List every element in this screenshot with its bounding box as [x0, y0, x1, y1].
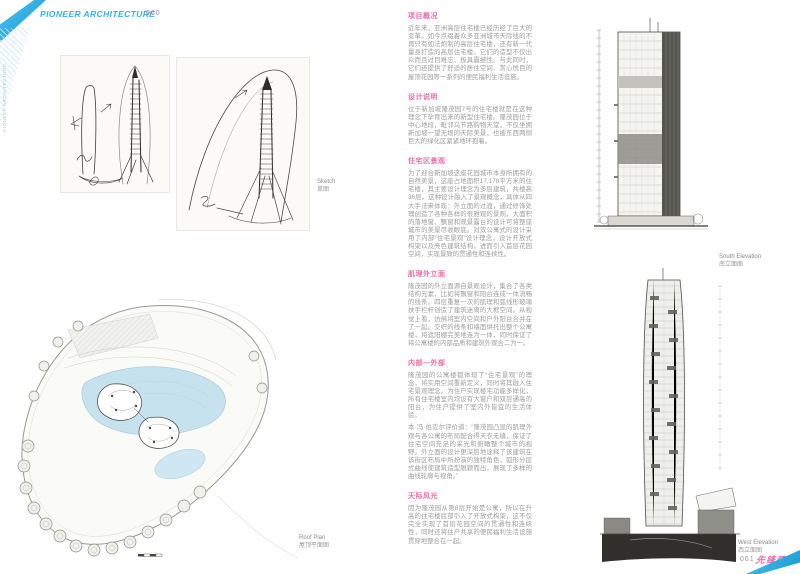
- article-column: 项目概况 近年来，亚洲高层住宅楼已经历经了巨大的变革。如今点缀着众多亚洲城市天际…: [408, 11, 532, 550]
- west-elevation-caption-en: West Elevation: [738, 540, 778, 548]
- section-heading: 内部—外部: [408, 358, 532, 368]
- page-number-right: 061: [740, 556, 755, 563]
- section-paragraph: 为了迎合新加坡这座花园城市本身所拥有的自然美景，这座占地面积17,178平方米的…: [408, 170, 532, 259]
- magazine-spread: PIONEER ARCHITECTURE 060 PIONEER ARCHITE…: [0, 0, 800, 574]
- sketch-panel-1: [60, 55, 170, 193]
- section-heading: 天际风光: [408, 491, 532, 501]
- section-heading: 住宅区景观: [408, 156, 532, 166]
- section-paragraph: 近年来，亚洲高层住宅楼已经历经了巨大的变革。如今点缀着众多亚洲城市天际线的不再只…: [408, 25, 532, 82]
- roof-plan-drawing: [8, 296, 308, 568]
- roof-plan-caption-en: Roof Plan: [299, 535, 329, 543]
- sketch-caption-cn: 草图: [317, 187, 335, 195]
- section-paragraph: 本·冯·伯克尔评价道：“隆茂园凸显的肌理外观与各公寓的布局配合得天衣无缝，保证了…: [408, 424, 532, 481]
- page-number-left: 060: [146, 10, 161, 17]
- article-section: 设计说明 位于新加坡隆茂园7号的住宅楼就是在这种理念下孕育出来的新型住宅楼。隆茂…: [408, 92, 532, 146]
- article-section: 天际风光 因为隆茂园从第8层开始是公寓，所以在升高的住宅楼底部引入了开放式构架，…: [408, 491, 532, 545]
- article-section: 肌理外立面 隆茂园的外立面源自景观设计，集合了各类结构元素，比如将飘窗和阳台连成…: [408, 269, 532, 348]
- section-heading: 设计说明: [408, 92, 532, 102]
- south-elevation-caption-en: South Elevation: [719, 254, 761, 262]
- west-elevation-drawing: [600, 266, 740, 568]
- section-paragraph: 因为隆茂园从第8层开始是公寓，所以在升高的住宅楼底部引入了开放式构架，这不仅完全…: [408, 505, 532, 545]
- sketch-caption-en: Sketch: [317, 179, 335, 187]
- section-heading: 项目概况: [408, 11, 532, 21]
- roof-plan-caption-cn: 屋顶平面图: [299, 543, 329, 551]
- article-section: 内部—外部 隆茂园的公寓楼都体现了“住宅景观”的理念，将实用空间重新定义，同时将…: [408, 358, 532, 481]
- section-heading: 肌理外立面: [408, 269, 532, 279]
- sketch-panel-2: [176, 57, 310, 231]
- south-elevation-figure: [592, 16, 710, 253]
- sketch-drawing-1: [61, 56, 167, 190]
- west-elevation-figure: [600, 266, 740, 573]
- south-elevation-drawing: [592, 16, 710, 248]
- section-paragraph: 隆茂园的公寓楼都体现了“住宅景观”的理念，将实用空间重新定义，同时将其融入住宅景…: [408, 372, 532, 421]
- article-section: 住宅区景观 为了迎合新加坡这座花园城市本身所拥有的自然美景，这座占地面积17,1…: [408, 156, 532, 259]
- roof-plan-figure: [8, 296, 308, 573]
- sketch-caption: Sketch 草图: [317, 179, 335, 194]
- side-vertical-label: PIONEER ARCHITECTURE: [2, 46, 7, 132]
- section-paragraph: 隆茂园的外立面源自景观设计，集合了各类结构元素，比如将飘窗和阳台连成一体流畅的线…: [408, 283, 532, 348]
- roof-plan-caption: Roof Plan 屋顶平面图: [299, 535, 329, 550]
- section-paragraph: 位于新加坡隆茂园7号的住宅楼就是在这种理念下孕育出来的新型住宅楼。隆茂园位于中心…: [408, 106, 532, 146]
- article-section: 项目概况 近年来，亚洲高层住宅楼已经历经了巨大的变革。如今点缀着众多亚洲城市天际…: [408, 11, 532, 82]
- brand-title: PIONEER ARCHITECTURE: [40, 9, 155, 19]
- sketch-drawing-2: [177, 58, 307, 228]
